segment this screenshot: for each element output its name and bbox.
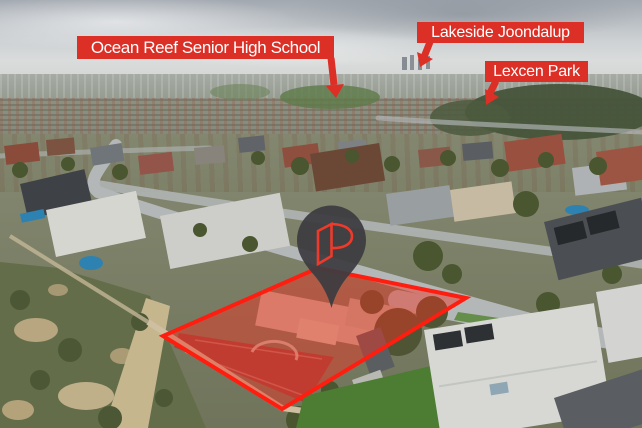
arrow-shaft xyxy=(331,58,334,85)
aerial-photo: Ocean Reef Senior High School Lakeside J… xyxy=(0,0,642,428)
arrow-shaft xyxy=(424,42,430,57)
arrow-head xyxy=(326,84,344,98)
arrow-lakeside-joondalup xyxy=(417,42,433,67)
label-lexcen-park: Lexcen Park xyxy=(485,61,588,82)
label-lakeside-joondalup: Lakeside Joondalup xyxy=(417,22,584,43)
label-ocean-reef-senior-high-school: Ocean Reef Senior High School xyxy=(77,36,334,59)
arrow-lexcen-park xyxy=(485,81,499,105)
property-boundary-highlight xyxy=(163,268,466,409)
arrow-ocean-reef xyxy=(326,58,344,98)
